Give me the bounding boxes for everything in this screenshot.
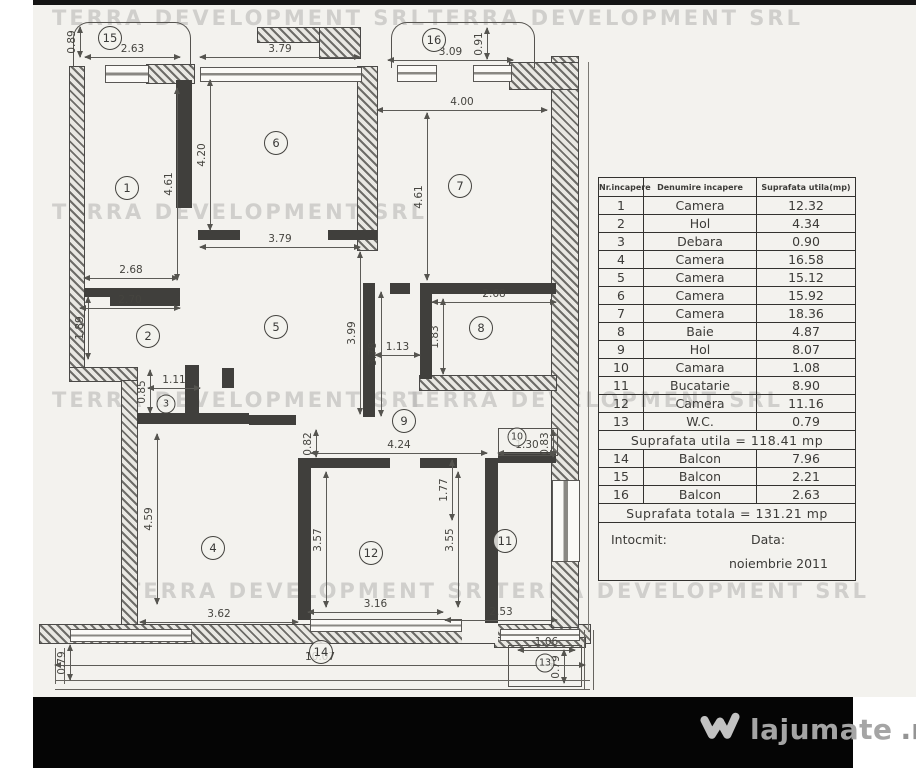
room-number-cell: 2 <box>599 215 644 233</box>
room-number: 15 <box>103 31 118 45</box>
dimension-label: 4.00 <box>448 96 475 108</box>
dimension-line: 4.24 <box>311 453 487 454</box>
structural-wall <box>420 376 556 390</box>
window <box>70 629 192 642</box>
room-number-marker: 12 <box>359 541 383 565</box>
subtotal-row: Suprafata utila = 118.41 mp <box>599 431 856 450</box>
interior-wall <box>198 230 240 240</box>
table-row: 13 W.C. 0.79 <box>599 413 856 431</box>
dimension-label: 3.55 <box>444 528 456 551</box>
room-number-marker: 8 <box>469 316 493 340</box>
room-area-cell: 7.96 <box>757 450 856 468</box>
dimension-label: 4.61 <box>163 172 175 195</box>
dimension-label: 2.68 <box>480 288 507 300</box>
table-row: 10 Camara 1.08 <box>599 359 856 377</box>
dimension-line: 1.89 <box>88 297 89 359</box>
room-name-cell: Baie <box>644 323 757 341</box>
room-number-cell: 1 <box>599 197 644 215</box>
room-number-cell: 4 <box>599 251 644 269</box>
dimension-label: 2.63 <box>119 43 146 55</box>
room-number: 10 <box>511 432 523 443</box>
building-edge-line <box>588 62 591 632</box>
lajumate-logo-text: lajumate <box>750 713 892 746</box>
room-number-marker: 11 <box>493 529 517 553</box>
room-number: 13 <box>539 658 551 669</box>
dimension-label: 0.82 <box>302 432 314 455</box>
door-opening <box>462 623 498 643</box>
table-row: 14 Balcon 7.96 <box>599 450 856 468</box>
dimension-line: 3.09 <box>388 60 513 61</box>
dimension-label: 4.20 <box>196 143 208 166</box>
room-area-cell: 1.08 <box>757 359 856 377</box>
room-number: 11 <box>498 534 513 548</box>
room-number: 4 <box>209 541 216 555</box>
dimension-label: 4.24 <box>385 439 412 451</box>
table-row: 6 Camera 15.92 <box>599 287 856 305</box>
room-number-marker: 15 <box>98 26 122 50</box>
scanned-floor-plan-image: TERRA DEVELOPMENT SRL TERRA DEVELOPMENT … <box>0 0 916 768</box>
dimension-label: 1.89 <box>74 316 86 339</box>
outer-wall <box>70 368 137 381</box>
room-name-cell: Camera <box>644 287 757 305</box>
room-number: 5 <box>272 320 279 334</box>
dimension-label: 2.53 <box>487 606 514 618</box>
watermark-text: TERRA DEVELOPMENT SRL <box>494 579 869 603</box>
dimension-line: 3.16 <box>308 612 443 613</box>
dimension-line: 2.68 <box>84 278 178 279</box>
dimension-line: 3.55 <box>458 472 459 607</box>
room-number-marker: 13 <box>536 654 555 673</box>
room-area-cell: 18.36 <box>757 305 856 323</box>
dimension-label: 2.68 <box>117 264 144 276</box>
room-number-cell: 5 <box>599 269 644 287</box>
room-area-cell: 15.92 <box>757 287 856 305</box>
interior-wall <box>222 368 234 388</box>
room-area-cell: 16.58 <box>757 251 856 269</box>
dimension-line: 4.00 <box>377 110 547 111</box>
outer-wall <box>122 381 137 627</box>
total-row: Suprafata totala = 131.21 mp <box>599 504 856 523</box>
room-area-cell: 15.12 <box>757 269 856 287</box>
table-row: 7 Camera 18.36 <box>599 305 856 323</box>
dimension-line: 0.82 <box>316 430 317 457</box>
table-row: 1 Camera 12.32 <box>599 197 856 215</box>
dimension-line: 2.63 <box>85 57 180 58</box>
window <box>552 480 580 562</box>
room-number: 9 <box>400 414 407 428</box>
outer-wall <box>258 28 320 42</box>
interior-wall <box>390 283 410 294</box>
room-number-cell: 8 <box>599 323 644 341</box>
room-number-cell: 7 <box>599 305 644 323</box>
dimension-label: 4.61 <box>413 185 425 208</box>
room-name-cell: Debara <box>644 233 757 251</box>
room-number: 12 <box>364 546 379 560</box>
dimension-line: 0.89 <box>80 27 81 57</box>
room-name-cell: Hol <box>644 215 757 233</box>
area-table: Nr.incapere Denumire incapere Suprafata … <box>598 177 856 581</box>
subtotal-cell: Suprafata utila = 118.41 mp <box>599 431 856 450</box>
room-number: 7 <box>456 179 463 193</box>
table-row: 12 Camera 11.16 <box>599 395 856 413</box>
lajumate-logo-suffix: .ro <box>900 713 916 746</box>
dimension-line: 3.99 <box>360 252 361 414</box>
header-area: Suprafata utila(mp) <box>757 178 856 197</box>
dimension-line: 2.70 <box>80 308 180 309</box>
dimension-line: 3.57 <box>326 472 327 607</box>
room-number: 8 <box>477 321 484 335</box>
interior-wall <box>328 230 377 240</box>
window <box>310 619 462 632</box>
room-number-cell: 16 <box>599 486 644 504</box>
date-value: noiembrie 2011 <box>729 556 828 571</box>
dimension-line: 4.61 <box>177 88 178 280</box>
table-row: 16 Balcon 2.63 <box>599 486 856 504</box>
room-area-cell: 4.87 <box>757 323 856 341</box>
interior-wall <box>298 458 311 620</box>
room-area-cell: 4.34 <box>757 215 856 233</box>
room-number: 6 <box>272 136 279 150</box>
room-area-cell: 8.07 <box>757 341 856 359</box>
room-name-cell: W.C. <box>644 413 757 431</box>
subtotal-body: Suprafata utila = 118.41 mp <box>599 431 856 450</box>
room-name-cell: Balcon <box>644 468 757 486</box>
header-nr: Nr.incapere <box>599 178 644 197</box>
room-number-marker: 9 <box>392 409 416 433</box>
interior-wall <box>137 413 249 424</box>
header-name: Denumire incapere <box>644 178 757 197</box>
room-number-cell: 6 <box>599 287 644 305</box>
table-row: 2 Hol 4.34 <box>599 215 856 233</box>
dimension-line: 3.78 <box>381 292 382 416</box>
room-name-cell: Balcon <box>644 450 757 468</box>
room-area-cell: 8.90 <box>757 377 856 395</box>
dimension-line: 0.79 <box>70 645 71 680</box>
room-number-cell: 10 <box>599 359 644 377</box>
interior-wall <box>185 365 199 417</box>
room-area-cell: 2.21 <box>757 468 856 486</box>
dimension-label: 2.70 <box>116 294 143 306</box>
dimension-line: 3.79 <box>200 57 360 58</box>
dimension-label: 3.78 <box>367 342 379 365</box>
table-footer-box: Intocmit: Data: noiembrie 2011 <box>598 523 856 581</box>
room-name-cell: Camera <box>644 305 757 323</box>
table-row: 11 Bucatarie 8.90 <box>599 377 856 395</box>
room-name-cell: Camera <box>644 269 757 287</box>
dimension-label: 3.62 <box>205 608 232 620</box>
total-body: Suprafata totala = 131.21 mp <box>599 504 856 523</box>
room-number-marker: 10 <box>508 428 527 447</box>
room-number: 3 <box>163 399 169 410</box>
window <box>200 67 362 82</box>
dimension-line: 3.62 <box>140 622 298 623</box>
dimension-label: 0.83 <box>539 432 551 455</box>
room-number-marker: 16 <box>422 28 446 52</box>
room-area-cell: 12.32 <box>757 197 856 215</box>
area-table-grid: Nr.incapere Denumire incapere Suprafata … <box>598 177 856 523</box>
dimension-label: 0.89 <box>66 30 78 53</box>
dimension-line: 4.61 <box>427 113 428 280</box>
dimension-label: 1.06 <box>533 636 560 648</box>
room-number-marker: 4 <box>201 536 225 560</box>
table-body: 1 Camera 12.32 2 Hol 4.34 3 Debara 0.90 … <box>599 197 856 431</box>
intocmit-label: Intocmit: <box>611 532 667 547</box>
dimension-label: 3.99 <box>346 321 358 344</box>
dimension-label: 3.79 <box>266 43 293 55</box>
table-row: 5 Camera 15.12 <box>599 269 856 287</box>
structural-wall <box>358 67 377 250</box>
dimension-line: 0.83 <box>553 430 554 457</box>
total-cell: Suprafata totala = 131.21 mp <box>599 504 856 523</box>
table-header-row: Nr.incapere Denumire incapere Suprafata … <box>599 178 856 197</box>
dimension-line: 1.83 <box>443 299 444 374</box>
balcony-table-body: 14 Balcon 7.96 15 Balcon 2.21 16 Balcon … <box>599 450 856 504</box>
room-name-cell: Hol <box>644 341 757 359</box>
dimension-label: 3.57 <box>312 528 324 551</box>
dimension-line: 0.79 <box>564 650 565 683</box>
room-number: 1 <box>123 181 130 195</box>
room-number-cell: 13 <box>599 413 644 431</box>
dimension-label: 1.77 <box>438 478 450 501</box>
table-row: 9 Hol 8.07 <box>599 341 856 359</box>
room-number-cell: 3 <box>599 233 644 251</box>
room-number-marker: 6 <box>264 131 288 155</box>
room-number-marker: 1 <box>115 176 139 200</box>
dimension-line: 1.11 <box>148 388 200 389</box>
watermark-text: TERRA DEVELOPMENT SRL <box>126 579 501 603</box>
room-name-cell: Camara <box>644 359 757 377</box>
dimension-line: 0.91 <box>487 28 488 59</box>
table-row: 3 Debara 0.90 <box>599 233 856 251</box>
room-name-cell: Camera <box>644 251 757 269</box>
room-area-cell: 11.16 <box>757 395 856 413</box>
lajumate-logo-icon <box>698 710 742 748</box>
dimension-label: 1.83 <box>429 325 441 348</box>
dimension-label: 1.11 <box>160 374 187 386</box>
room-number: 14 <box>314 645 329 659</box>
room-number-marker: 5 <box>264 315 288 339</box>
lajumate-logo: lajumate.ro <box>698 710 916 748</box>
room-area-cell: 0.79 <box>757 413 856 431</box>
dimension-label: 3.79 <box>266 233 293 245</box>
room-number-marker: 3 <box>157 395 176 414</box>
interior-wall <box>249 415 296 425</box>
dimension-label: 0.85 <box>136 380 148 403</box>
interior-wall <box>298 458 390 468</box>
room-number-cell: 9 <box>599 341 644 359</box>
dimension-label: 3.16 <box>362 598 389 610</box>
room-number-marker: 7 <box>448 174 472 198</box>
interior-wall <box>176 80 192 208</box>
room-number-marker: 14 <box>309 640 333 664</box>
room-name-cell: Bucatarie <box>644 377 757 395</box>
dimension-line: 3.79 <box>200 247 360 248</box>
table-row: 4 Camera 16.58 <box>599 251 856 269</box>
dimension-line: 4.20 <box>210 80 211 230</box>
room-number-cell: 11 <box>599 377 644 395</box>
dimension-line: 0.85 <box>150 370 151 413</box>
table-row: 15 Balcon 2.21 <box>599 468 856 486</box>
balcony-railing <box>584 630 594 690</box>
room-number-cell: 14 <box>599 450 644 468</box>
room-name-cell: Camera <box>644 395 757 413</box>
room-number-cell: 12 <box>599 395 644 413</box>
dimension-line: 2.68 <box>432 302 556 303</box>
dimension-label: 1.13 <box>384 341 411 353</box>
room-number: 16 <box>427 33 442 47</box>
dimension-line: 1.77 <box>452 460 453 520</box>
room-name-cell: Balcon <box>644 486 757 504</box>
balcony-railing <box>55 680 590 690</box>
table-row: 8 Baie 4.87 <box>599 323 856 341</box>
window <box>105 65 149 83</box>
room-number-cell: 15 <box>599 468 644 486</box>
room-area-cell: 0.90 <box>757 233 856 251</box>
dimension-line: 2.53 <box>445 620 557 621</box>
dimension-label: 4.59 <box>143 507 155 530</box>
dimension-label: 0.79 <box>56 651 68 674</box>
room-name-cell: Camera <box>644 197 757 215</box>
room-number-marker: 2 <box>136 324 160 348</box>
dimension-line: 4.59 <box>157 434 158 604</box>
dimension-label: 0.91 <box>473 32 485 55</box>
room-number: 2 <box>144 329 151 343</box>
data-label: Data: <box>751 532 785 547</box>
dimension-line: 10.07 <box>55 665 585 666</box>
room-area-cell: 2.63 <box>757 486 856 504</box>
